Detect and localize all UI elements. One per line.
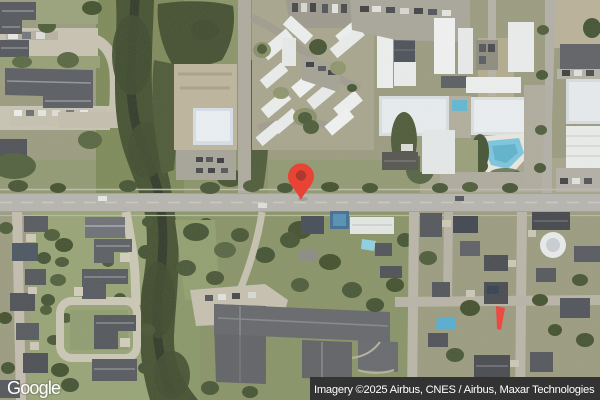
svg-text:Imagery ©2025 Airbus, CNES / A: Imagery ©2025 Airbus, CNES / Airbus, Max… <box>314 384 595 396</box>
svg-text:Google: Google <box>7 378 61 398</box>
